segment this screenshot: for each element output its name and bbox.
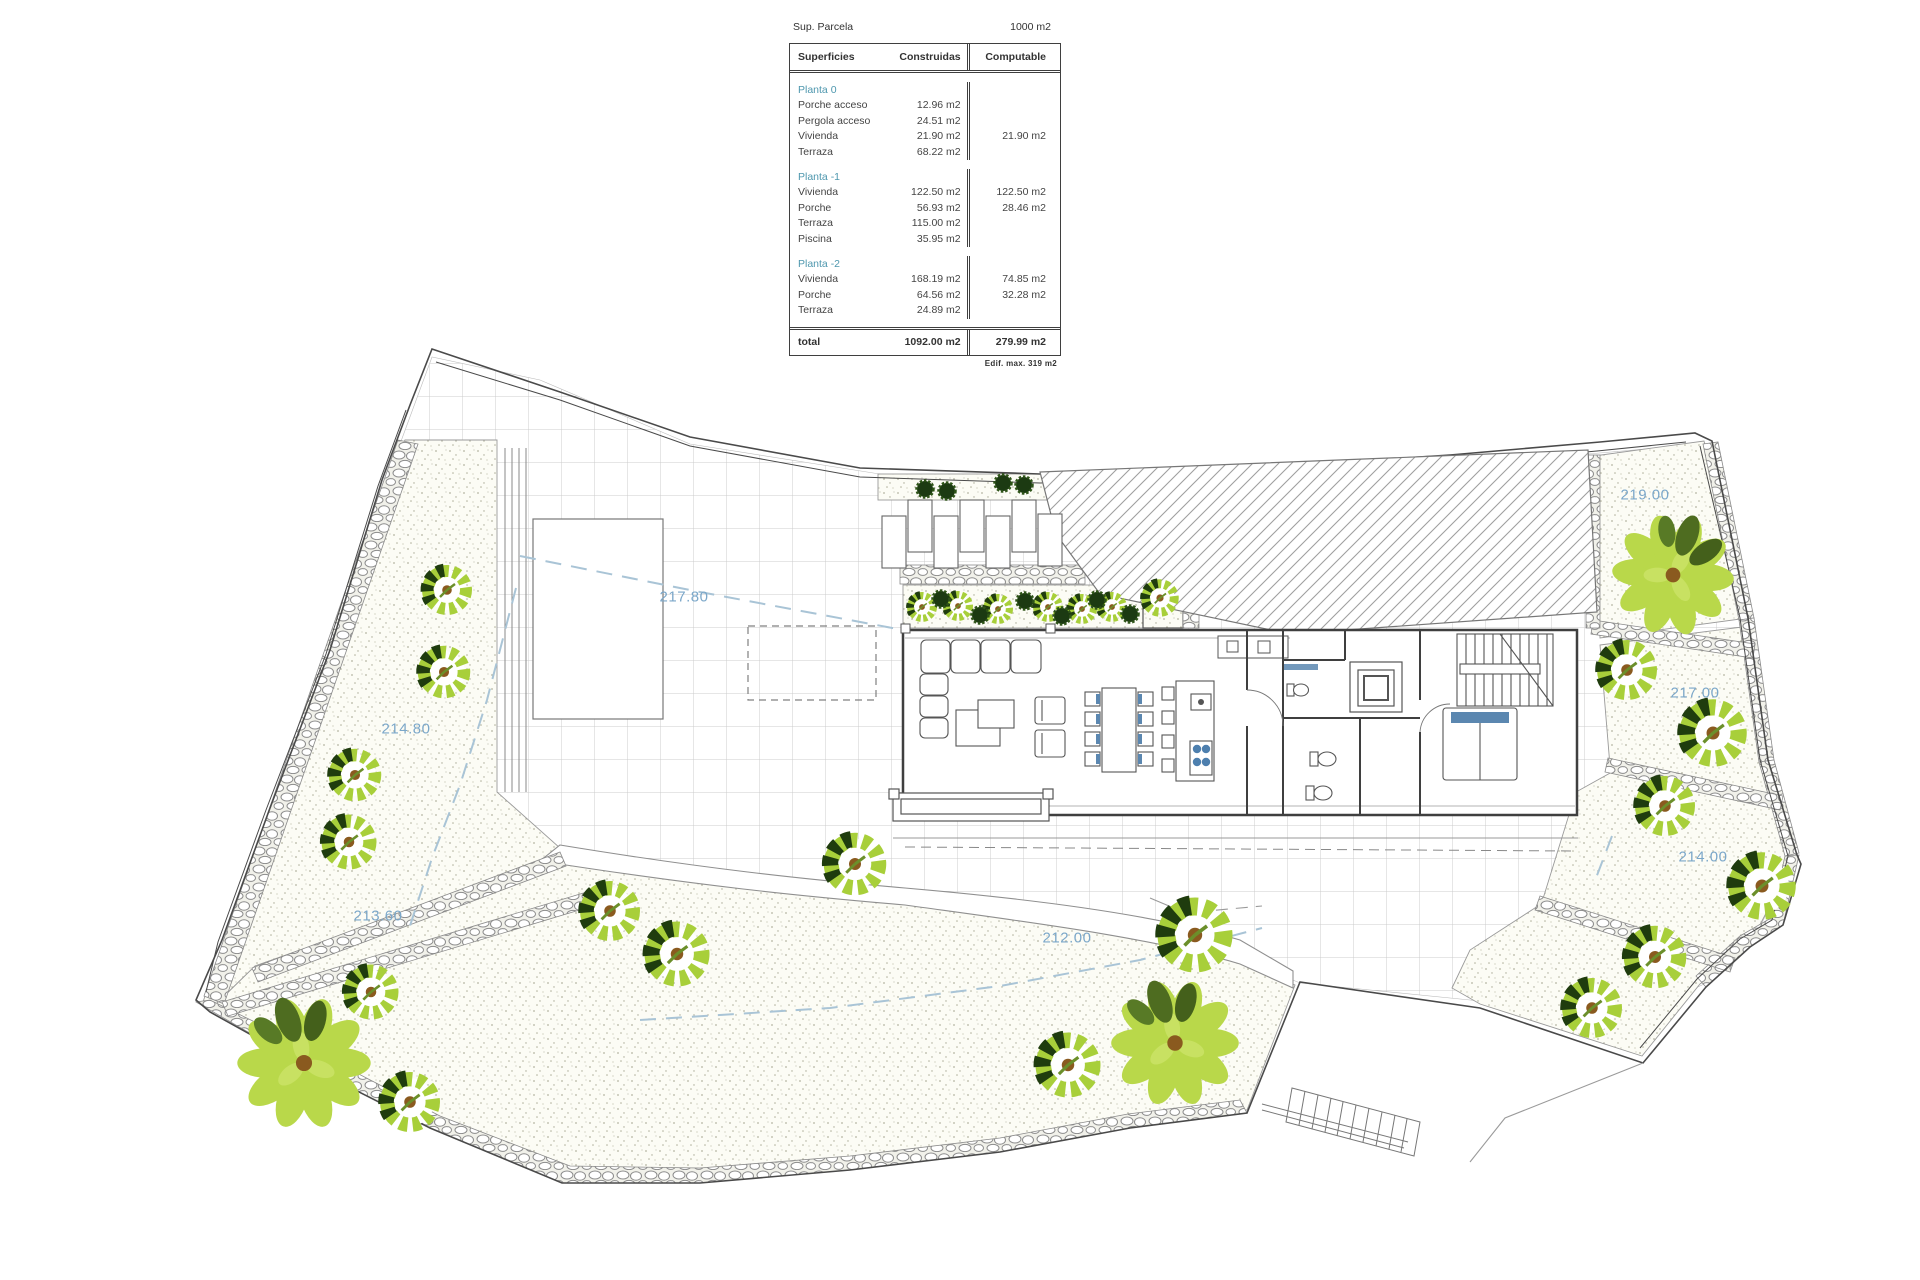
elevation-label: 214.80 xyxy=(382,721,431,738)
building xyxy=(901,624,1577,815)
elevation-label: 212.00 xyxy=(1043,930,1092,947)
total-label: total xyxy=(798,330,820,355)
table-row: Terraza68.22 m2 xyxy=(790,145,1060,161)
header-computable: Computable xyxy=(967,44,1060,70)
stairs-exterior xyxy=(1262,1088,1420,1156)
table-row: Terraza24.89 m2 xyxy=(790,303,1060,319)
table-row: Pergola acceso24.51 m2 xyxy=(790,114,1060,130)
section-title-row: Planta 0 xyxy=(790,82,1060,98)
table-row: Vivienda122.50 m2122.50 m2 xyxy=(790,185,1060,201)
table-row: Vivienda21.90 m221.90 m2 xyxy=(790,129,1060,145)
stairs-interior xyxy=(1457,634,1553,706)
site-plan-sheet: Sup. Parcela 1000 m2 Superficies Constru… xyxy=(0,0,1920,1280)
section-title-row: Planta -1 xyxy=(790,169,1060,185)
surface-table-panel: Sup. Parcela 1000 m2 Superficies Constru… xyxy=(789,20,1061,368)
table-sections: Planta 0Porche acceso12.96 m2Pergola acc… xyxy=(790,82,1060,319)
total-built: 1092.00 m2 xyxy=(905,330,961,355)
table-row: Porche acceso12.96 m2 xyxy=(790,98,1060,114)
total-computable: 279.99 m2 xyxy=(967,330,1060,355)
porch-deck xyxy=(889,789,1053,821)
surface-table: Superficies Construidas Computable Plant… xyxy=(789,43,1061,356)
parcel-label: Sup. Parcela xyxy=(793,20,853,34)
washbasin xyxy=(1284,664,1318,670)
elevation-label: 217.00 xyxy=(1671,685,1720,702)
table-header: Superficies Construidas Computable xyxy=(790,44,1060,73)
elevator xyxy=(1350,662,1402,712)
parcel-title-row: Sup. Parcela 1000 m2 xyxy=(789,20,1061,34)
max-edificability-note: Edif. max. 319 m2 xyxy=(789,359,1061,368)
elevation-label: 217.80 xyxy=(660,589,709,606)
table-total-row: total 1092.00 m2 279.99 m2 xyxy=(790,327,1060,355)
table-row: Piscina35.95 m2 xyxy=(790,232,1060,248)
elevation-label: 219.00 xyxy=(1621,487,1670,504)
table-row: Terraza115.00 m2 xyxy=(790,216,1060,232)
bed xyxy=(1443,708,1517,780)
parcel-value: 1000 m2 xyxy=(1010,20,1051,34)
header-construidas: Construidas xyxy=(899,44,960,70)
section-title-row: Planta -2 xyxy=(790,256,1060,272)
table-row: Porche56.93 m228.46 m2 xyxy=(790,201,1060,217)
wall-counter xyxy=(1218,636,1288,658)
header-superficies: Superficies xyxy=(798,44,855,70)
table-row: Porche64.56 m232.28 m2 xyxy=(790,288,1060,304)
elevation-label: 213.60 xyxy=(354,908,403,925)
elevation-label: 214.00 xyxy=(1679,849,1728,866)
table-row: Vivienda168.19 m274.85 m2 xyxy=(790,272,1060,288)
